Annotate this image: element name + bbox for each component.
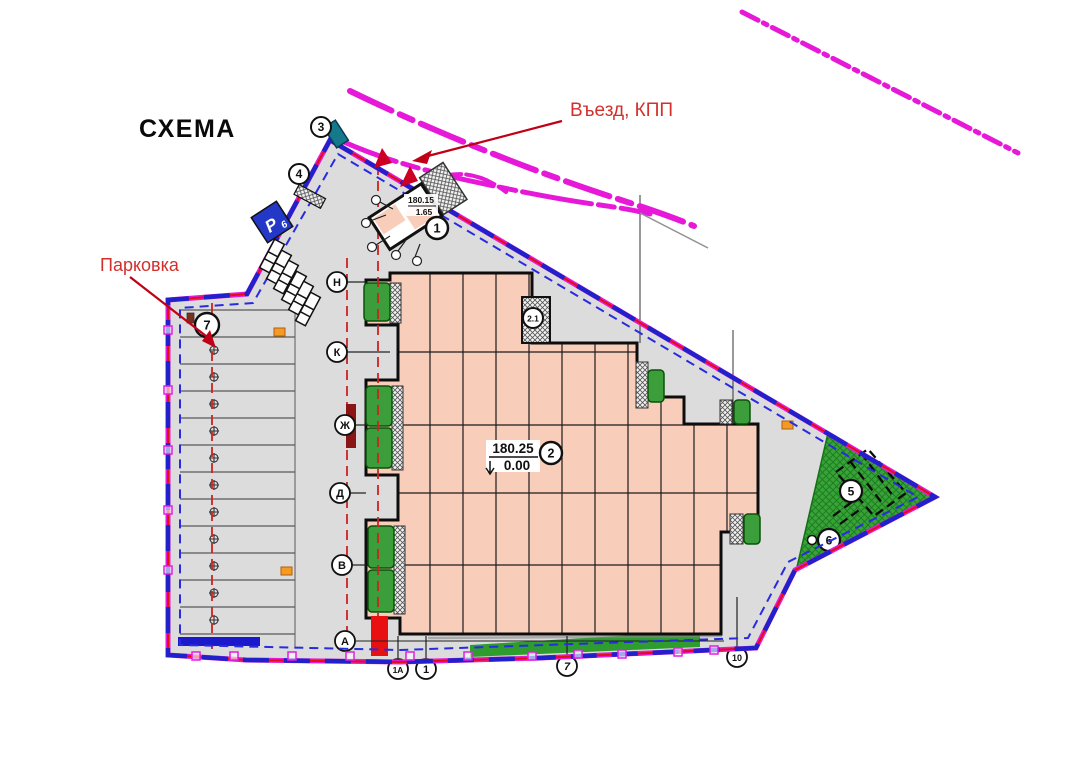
entrance-label: Въезд, КПП: [570, 100, 673, 121]
kpp-level: 1.65: [416, 207, 433, 217]
page-title: СХЕМА: [139, 115, 236, 143]
building-number: 2: [548, 447, 555, 461]
axis-k: К: [334, 347, 341, 359]
entrance-annotation: Въезд, КПП: [412, 100, 673, 164]
entrance-arrow-head: [412, 150, 432, 164]
parking-label: Парковка: [100, 255, 180, 275]
building-level: 0.00: [504, 458, 530, 473]
fence-number: 4: [296, 167, 303, 181]
site-plan-drawing: 2.1 Н К Ж Д В А 1А: [0, 0, 1072, 768]
axis-n: Н: [333, 277, 341, 289]
kpp-elevation: 180.15: [408, 195, 434, 205]
axis-10: 10: [732, 653, 742, 663]
gate-number: 3: [318, 120, 325, 134]
axis-a: А: [341, 636, 349, 648]
parking-lot-number: 7: [203, 318, 210, 333]
courts-number: 5: [848, 485, 855, 499]
building-elevation: 180.25: [492, 441, 534, 456]
site-plan-canvas: 2.1 Н К Ж Д В А 1А: [0, 0, 1072, 768]
kpp-elevation-label: 180.15 1.65: [404, 194, 438, 217]
annex: 2.1: [522, 297, 550, 343]
annex-number: 2.1: [527, 314, 539, 324]
axis-d: Д: [336, 488, 344, 500]
road-dash-dot: [742, 12, 1018, 153]
axis-1: 1: [423, 664, 429, 676]
kpp-number: 1: [433, 221, 440, 236]
axis-1a: 1А: [393, 665, 404, 675]
axis-7: 7: [564, 661, 571, 673]
axis-v: В: [338, 560, 346, 572]
axis-zh: Ж: [339, 420, 350, 432]
